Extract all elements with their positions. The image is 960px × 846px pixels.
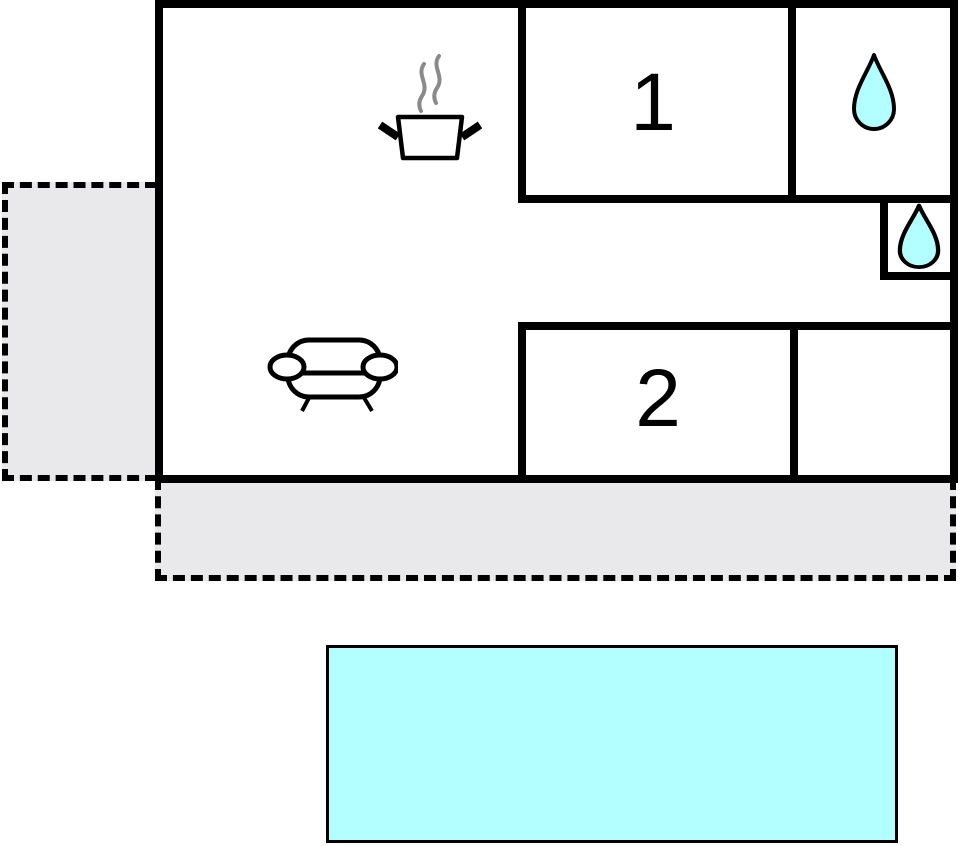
sofa-icon [266, 334, 398, 418]
wall-wc-left [880, 203, 888, 280]
cooking-pot-icon [372, 48, 484, 166]
wall-room1-bathroom-divider [788, 8, 796, 203]
terrace-left [2, 182, 157, 481]
room-2-label: 2 [635, 358, 681, 440]
steam-icon [419, 56, 439, 111]
pot-body [380, 117, 480, 158]
water-drop-icon-small [897, 203, 941, 273]
floor-plan: 1 2 [0, 0, 960, 846]
wall-room2-divider [790, 330, 798, 482]
swimming-pool [326, 645, 898, 843]
wall-wc-bottom [880, 272, 958, 280]
terrace-bottom [155, 478, 956, 581]
sofa-shape [270, 340, 397, 411]
wall-room1-left [518, 8, 526, 203]
wall-middle-horizontal [518, 195, 954, 203]
wall-room2-top [518, 322, 954, 330]
room-1-label: 1 [630, 62, 676, 144]
water-drop-icon-large [851, 52, 897, 136]
wall-room2-left [518, 330, 526, 482]
